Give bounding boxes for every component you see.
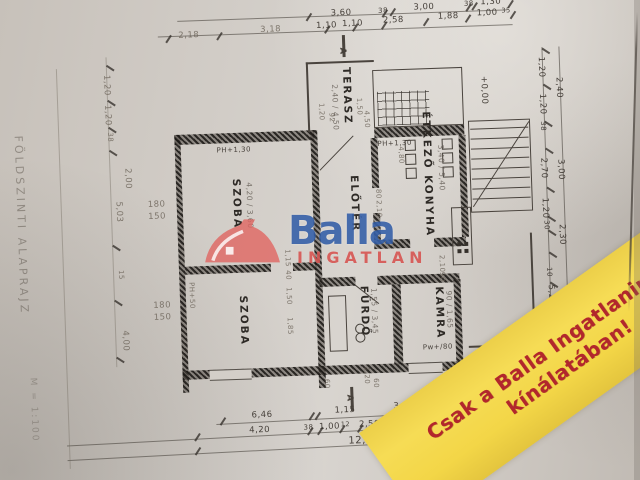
kitchen-cabinet [405, 154, 416, 165]
dim-annotation: 1,20 [537, 94, 548, 115]
dim-annotation: 4,20 [249, 425, 270, 436]
balla-watermark: Balla INGATLAN [200, 210, 430, 270]
dim-tick [194, 433, 200, 441]
dim-tick [549, 252, 557, 258]
dim-tick [109, 150, 117, 156]
brand-subtitle: INGATLAN [297, 248, 428, 267]
dim-annotation: 3,00 [413, 2, 434, 13]
dim-annotation: 10 [545, 267, 553, 277]
window-symbol [408, 362, 442, 374]
dim-annotation: 1,85 [286, 317, 295, 335]
dim-annotation: 35 [501, 6, 511, 14]
dim-annotation: PH+50 [187, 282, 196, 309]
wall-right-lower [453, 279, 463, 365]
dim-annotation: 5,03 [114, 201, 125, 222]
dim-annotation: 1,88 [438, 11, 459, 22]
dim-tick [423, 18, 429, 26]
dim-annotation: 1,20 [102, 105, 113, 126]
dim-tick [543, 84, 551, 90]
dim-annotation: +0,00 [478, 76, 489, 105]
dim-tick [547, 187, 555, 193]
dim-annotation: 90 [438, 272, 446, 282]
dim-annotation: 4,00 [120, 330, 131, 351]
room-label-terasz: TERASZ [340, 67, 354, 125]
dim-annotation: 150 [154, 312, 172, 323]
dim-annotation: 1,15 [334, 405, 355, 416]
terrace-wall [306, 60, 374, 64]
stove-burner [457, 242, 461, 246]
stove-burner [464, 242, 468, 246]
dim-annotation: 1,20 [536, 57, 547, 78]
dim-annotation: 1,50 [285, 287, 294, 305]
door-swing [320, 135, 354, 170]
dim-tick [216, 32, 222, 40]
dim-annotation: 80 [374, 189, 382, 199]
dim-annotation: 30 [542, 220, 550, 230]
dim-annotation: 1,10 [342, 18, 363, 29]
dim-annotation: A [337, 47, 347, 54]
dim-annotation: Pw+/80 [423, 342, 453, 351]
dim-tick [116, 357, 124, 363]
kitchen-counter [451, 207, 473, 266]
dim-annotation: 3,60 [330, 8, 351, 19]
dim-annotation: 1,20 [101, 75, 112, 96]
room-label-szoba: SZOBA [237, 295, 251, 346]
room-dims: 1,55 / 3,45 [369, 288, 380, 334]
dim-annotation: 60 [372, 378, 380, 388]
room-dims: 2,40 / 4,50 [330, 84, 341, 130]
wall-bath-pantry [392, 284, 404, 364]
drawing-title: FÖLDSZINTI ALAPRAJZ [12, 135, 31, 315]
dim-annotation: 4,80 [397, 146, 406, 164]
dim-annotation: PH+1,30 [216, 145, 251, 154]
terrace-wall [306, 62, 310, 132]
dim-annotation: 60 [323, 379, 331, 389]
dim-annotation: 1,00 [477, 8, 498, 19]
dim-tick [112, 245, 120, 251]
paper-edge-shadow [634, 0, 640, 480]
dim-annotation: 38 [106, 132, 114, 142]
room-dims: 90 / 1,65 [444, 290, 454, 328]
stove-burner [457, 249, 461, 253]
dim-annotation: 2,00 [122, 168, 133, 189]
dim-annotation: 15 [117, 270, 125, 280]
dim-annotation: 1,30 [480, 0, 501, 7]
dim-tick [114, 300, 122, 306]
dim-tick [106, 65, 114, 71]
dim-annotation: 1,20 [317, 103, 326, 121]
room-dims: 3,40 / 5,40 [436, 144, 447, 190]
dim-annotation: 2,30 [557, 224, 568, 245]
dim-annotation: 1,20 [362, 367, 371, 385]
dim-annotation: 2,70 [538, 158, 549, 179]
dim-annotation: 2,10 [438, 255, 447, 273]
dim-annotation: PH+1,30 [377, 139, 412, 148]
dim-tick [542, 48, 550, 54]
wall-pantry-top [377, 273, 459, 285]
dim-annotation: 150 [148, 211, 166, 222]
house-icon [200, 214, 286, 266]
dim-annotation: 40 [284, 270, 292, 280]
dim-tick [548, 230, 556, 236]
dim-annotation: A [344, 394, 354, 401]
dim-tick [545, 148, 553, 154]
dim-annotation: 3,18 [260, 24, 281, 35]
wall-pantry-top [319, 277, 355, 287]
kitchen-cabinet [406, 168, 417, 179]
dim-annotation: 180 [148, 199, 166, 210]
stove-burner [464, 249, 468, 253]
floorplan-photo: FÖLDSZINTI ALAPRAJZ M = 1:100 [0, 0, 640, 480]
window-symbol [209, 368, 251, 380]
sheet-border-line [56, 69, 71, 469]
dim-tick [465, 14, 471, 22]
dim-annotation: 2,18 [178, 30, 199, 41]
dim-annotation: 6,46 [251, 410, 272, 421]
dim-annotation: 3,00 [555, 159, 566, 180]
bathtub [328, 295, 348, 352]
dim-annotation: 2,40 [553, 77, 564, 98]
wall-top-left [174, 130, 314, 145]
drawing-scale: M = 1:100 [28, 377, 40, 442]
dim-annotation: 180 [153, 300, 171, 311]
dim-annotation: 4,50 [363, 110, 372, 128]
wall-left-outer [174, 135, 189, 393]
